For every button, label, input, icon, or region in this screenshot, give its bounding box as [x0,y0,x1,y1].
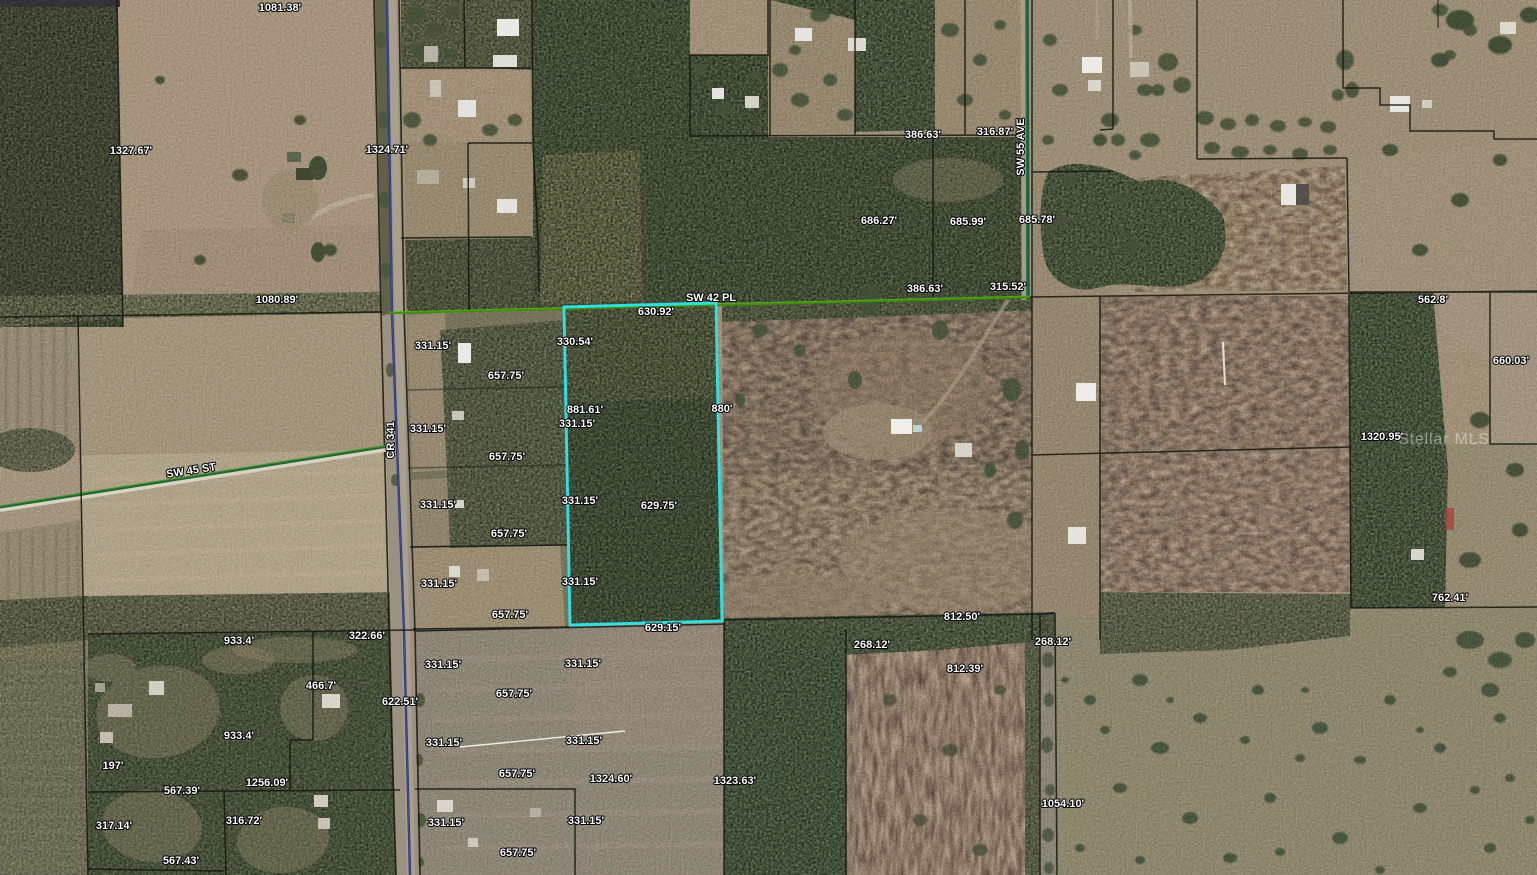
svg-text:331.15': 331.15' [562,576,599,588]
svg-text:331.15': 331.15' [425,659,462,671]
svg-text:630.92': 630.92' [638,306,675,318]
svg-text:331.15': 331.15' [426,737,463,749]
svg-text:629.75': 629.75' [641,500,678,512]
svg-text:657.75': 657.75' [489,451,526,463]
svg-text:331.15': 331.15' [559,418,596,430]
svg-text:1323.63': 1323.63' [714,775,757,787]
svg-text:933.4': 933.4' [224,730,255,742]
svg-text:657.75': 657.75' [496,688,533,700]
svg-text:331.15': 331.15' [565,658,602,670]
svg-text:315.52': 315.52' [990,281,1027,293]
svg-text:197': 197' [103,760,124,772]
svg-text:880': 880' [712,403,733,415]
svg-text:386.63': 386.63' [905,129,942,141]
svg-text:657.75': 657.75' [491,528,528,540]
svg-text:1324.60': 1324.60' [590,773,633,785]
svg-text:331.15': 331.15' [421,578,458,590]
svg-text:629.15': 629.15' [645,622,682,634]
svg-text:657.75': 657.75' [492,609,529,621]
svg-text:812.50': 812.50' [944,611,981,623]
svg-text:322.66': 322.66' [349,630,386,642]
svg-text:657.75': 657.75' [488,370,525,382]
svg-text:812.39': 812.39' [947,663,984,675]
svg-text:567.43': 567.43' [163,855,200,867]
svg-text:1327.67': 1327.67' [110,145,153,157]
svg-text:567.39': 567.39' [164,785,201,797]
svg-text:660.03': 660.03' [1493,355,1530,367]
svg-text:316.72': 316.72' [226,815,263,827]
svg-text:762.41': 762.41' [1432,592,1469,604]
svg-text:657.75': 657.75' [500,847,537,859]
svg-text:331.15': 331.15' [566,735,603,747]
svg-text:881.61': 881.61' [567,404,604,416]
svg-text:316.87': 316.87' [977,126,1014,138]
svg-text:CR 341: CR 341 [385,421,397,458]
svg-text:685.99': 685.99' [950,216,987,228]
svg-text:330.54': 330.54' [557,336,594,348]
svg-text:1081.38': 1081.38' [259,2,302,14]
svg-text:268.12': 268.12' [854,639,891,651]
svg-text:933.4': 933.4' [224,635,255,647]
svg-text:386.63': 386.63' [907,283,944,295]
svg-text:1256.09': 1256.09' [246,777,289,789]
svg-text:331.15': 331.15' [562,495,599,507]
svg-text:331.15': 331.15' [415,340,452,352]
svg-text:331.15': 331.15' [568,815,605,827]
svg-text:268.12': 268.12' [1035,636,1072,648]
svg-text:331.15': 331.15' [410,423,447,435]
svg-text:466.7': 466.7' [306,680,337,692]
svg-text:331.15': 331.15' [420,499,457,511]
svg-text:1320.95': 1320.95' [1361,431,1404,443]
svg-text:331.15': 331.15' [428,817,465,829]
svg-text:Stellar MLS: Stellar MLS [1398,431,1490,448]
svg-text:686.27': 686.27' [861,215,898,227]
svg-text:1054.10': 1054.10' [1042,798,1085,810]
svg-text:657.75': 657.75' [499,768,536,780]
svg-text:685.78': 685.78' [1019,214,1056,226]
svg-text:562.8': 562.8' [1418,294,1449,306]
svg-text:SW 55 AVE: SW 55 AVE [1015,118,1027,175]
svg-text:622.51': 622.51' [382,696,419,708]
svg-text:317.14': 317.14' [96,820,133,832]
svg-text:1324.71': 1324.71' [366,144,409,156]
svg-text:1080.89': 1080.89' [256,294,299,306]
svg-text:SW 42 PL: SW 42 PL [686,292,736,304]
